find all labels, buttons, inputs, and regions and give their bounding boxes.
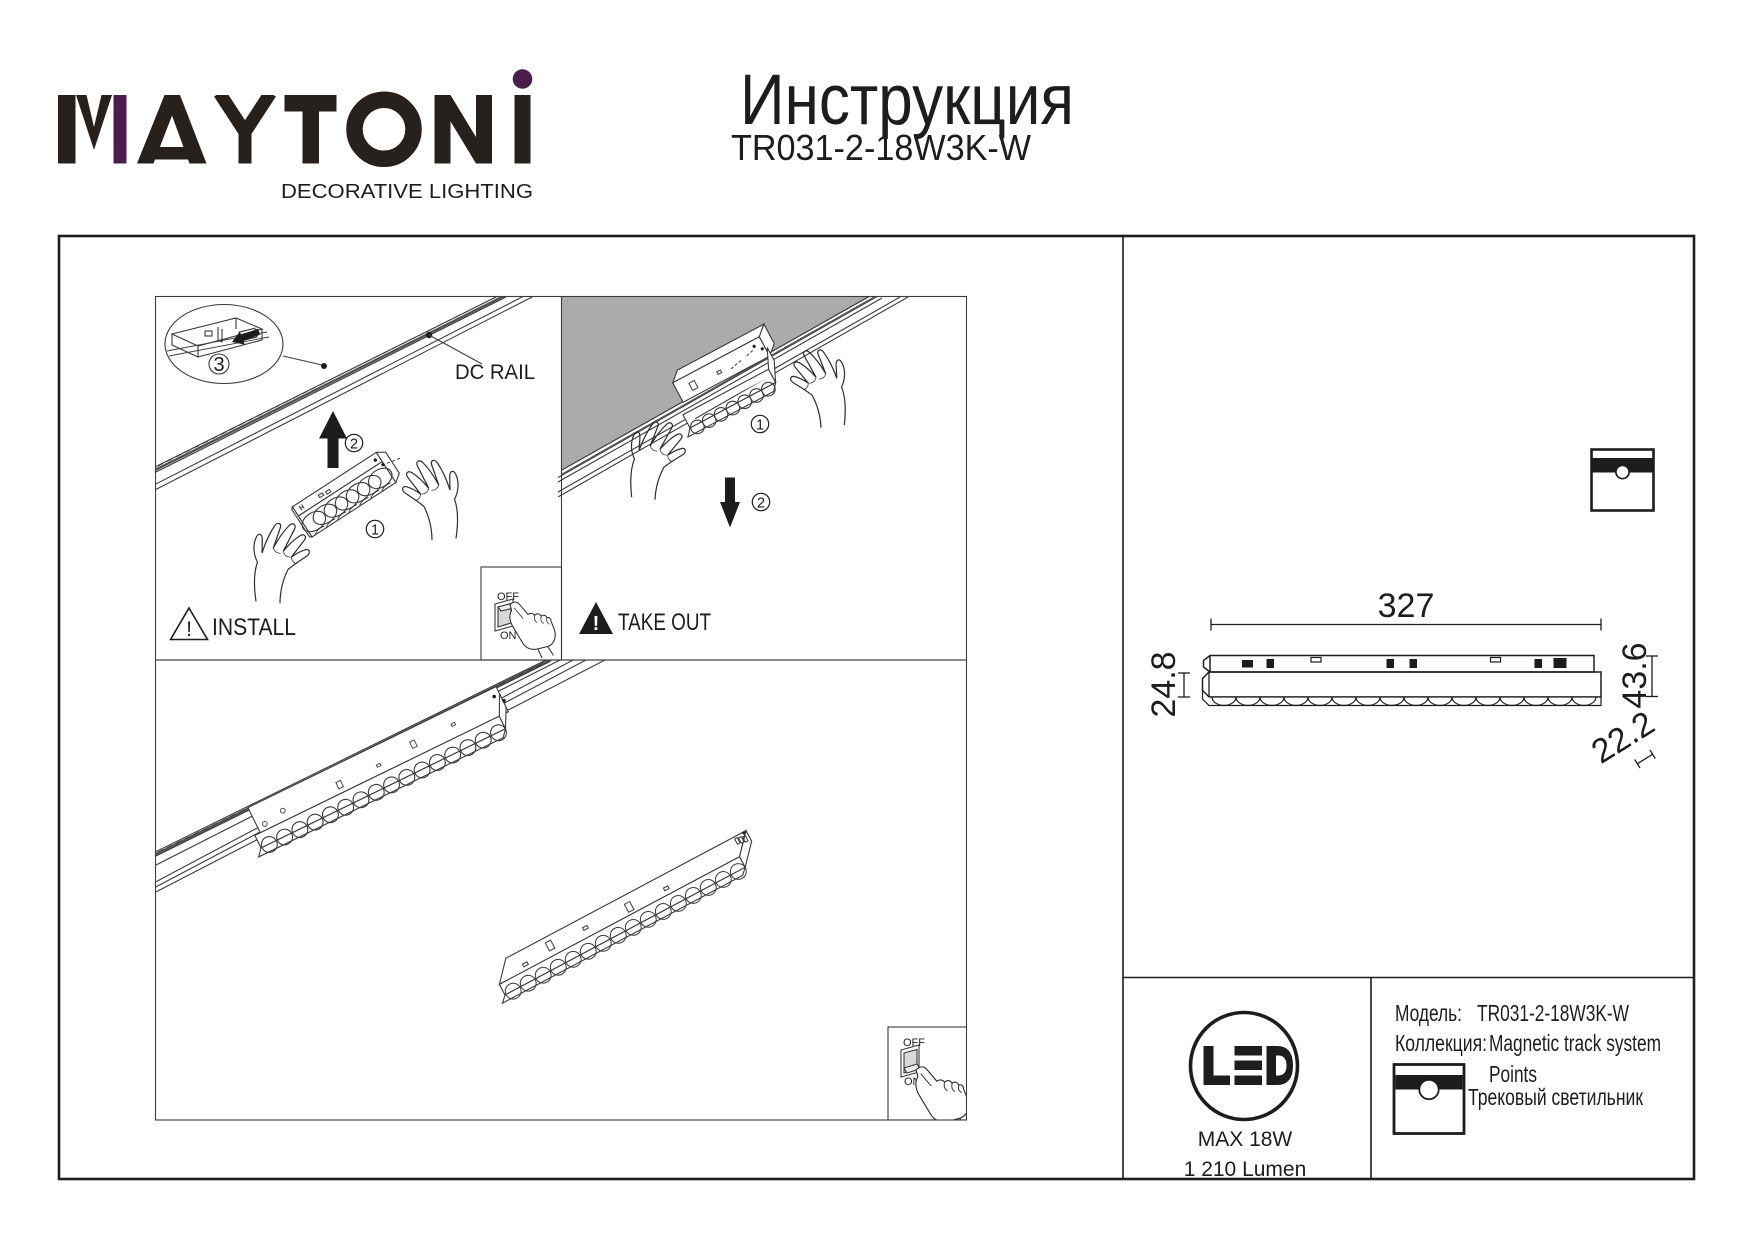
svg-text:Трековый светильник: Трековый светильник [1468, 1084, 1644, 1110]
svg-text:327: 327 [1378, 587, 1435, 625]
svg-text:1: 1 [371, 523, 379, 539]
svg-text:43.6: 43.6 [1616, 642, 1654, 708]
svg-text:TR031-2-18W3K-W: TR031-2-18W3K-W [731, 127, 1031, 168]
svg-text:DC RAIL: DC RAIL [455, 361, 535, 384]
svg-text:TR031-2-18W3K-W: TR031-2-18W3K-W [1477, 1000, 1629, 1026]
svg-text:Magnetic track system: Magnetic track system [1489, 1030, 1661, 1056]
svg-text:2: 2 [350, 437, 358, 453]
svg-text:INSTALL: INSTALL [212, 614, 296, 641]
svg-text:!: ! [593, 613, 600, 635]
svg-text:TAKE OUT: TAKE OUT [618, 609, 711, 636]
svg-text:Модель:: Модель: [1395, 1000, 1462, 1026]
svg-text:ON: ON [500, 630, 517, 642]
svg-text:1: 1 [756, 418, 764, 434]
svg-text:MAX 18W: MAX 18W [1198, 1128, 1293, 1151]
svg-text:Коллекция:: Коллекция: [1395, 1030, 1487, 1056]
svg-text:!: ! [186, 618, 192, 641]
svg-text:DECORATIVE LIGHTING: DECORATIVE LIGHTING [281, 181, 533, 203]
svg-text:24.8: 24.8 [1145, 651, 1183, 717]
svg-text:1 210 Lumen: 1 210 Lumen [1184, 1158, 1307, 1181]
svg-text:3: 3 [213, 354, 224, 376]
svg-text:2: 2 [757, 496, 765, 512]
